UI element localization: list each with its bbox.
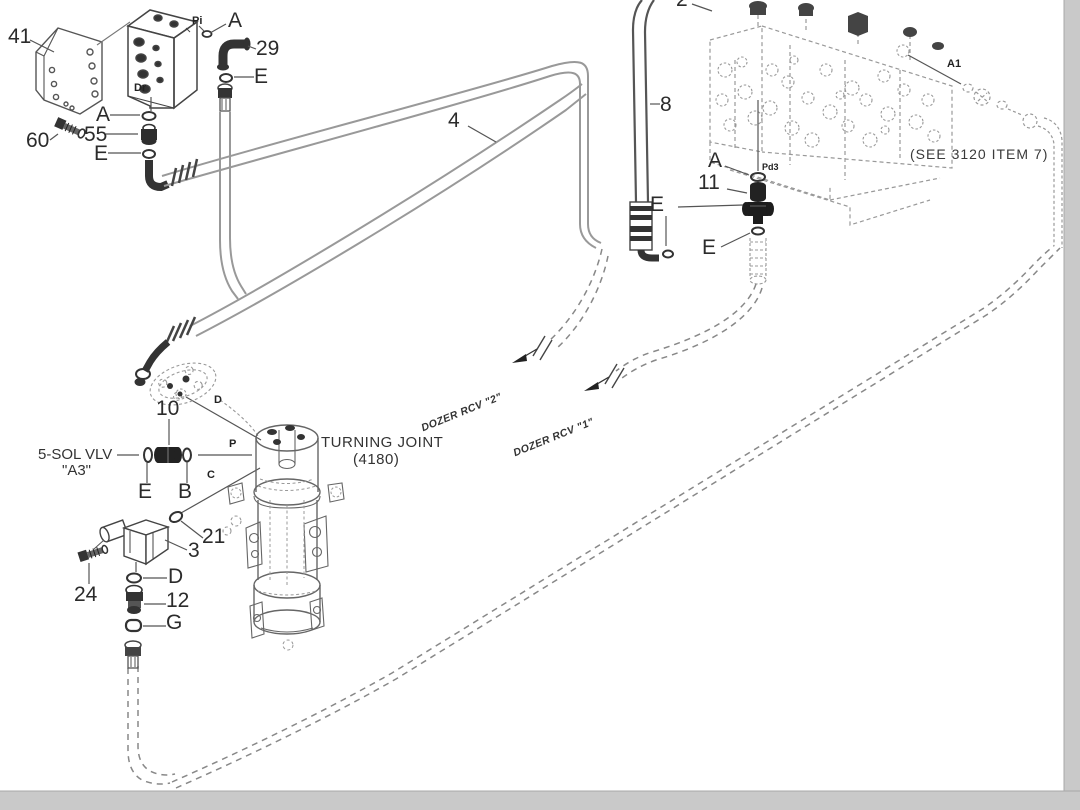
- callout-29: 29: [256, 38, 279, 59]
- straight-fitting-under-29: [218, 84, 232, 111]
- callout-4-leader: [468, 126, 496, 142]
- hose-4: [190, 84, 586, 336]
- callout-24: 24: [74, 584, 97, 605]
- fitting-letter-e-tee: E: [702, 237, 716, 258]
- fitting-letter-a-55: A: [96, 104, 110, 125]
- sol-vlv-fitting-row: [117, 419, 252, 483]
- solenoid-block-3: [94, 520, 187, 564]
- port-label-c: C: [207, 470, 215, 481]
- hose-4-crimp: [166, 317, 195, 344]
- misc-leaders: [30, 40, 54, 52]
- callout-3: 3: [188, 540, 200, 561]
- dozer-route-1-break: [605, 364, 624, 388]
- dr-port-chain: [106, 97, 168, 187]
- port-label-p: P: [229, 439, 236, 450]
- control-valve-caps: [749, 1, 944, 50]
- callout-21: 21: [202, 526, 225, 547]
- port-label-d: D: [214, 395, 222, 406]
- callout-4: 4: [448, 110, 460, 131]
- dozer-route-2: [549, 249, 608, 348]
- hose-4-end-elbow: [135, 342, 169, 386]
- turning-joint: [228, 425, 344, 638]
- see-reference-note: (SEE 3120 ITEM 7): [910, 147, 1048, 161]
- control-valve-ports: [716, 56, 940, 147]
- turning-joint-code: (4180): [353, 452, 399, 467]
- port-label-pi: Pi: [192, 16, 202, 27]
- fitting-letter-e-29: E: [254, 66, 268, 87]
- fitting-letter-e-sol: E: [138, 481, 152, 502]
- o-ring-21: [168, 510, 203, 538]
- dozer-route-2-break: [533, 336, 552, 360]
- hose-8: [633, 0, 654, 202]
- fitting-letter-e-hose8: E: [650, 194, 664, 215]
- port-label-dr: Dr: [134, 83, 146, 94]
- port-label-pd3: Pd3: [762, 163, 779, 172]
- callout-12: 12: [166, 590, 189, 611]
- long-dashed-hose-route: [128, 246, 1060, 788]
- fitting-letter-a-top: A: [228, 10, 242, 31]
- callout-41: 41: [8, 26, 31, 47]
- callout-11: 11: [698, 172, 720, 193]
- callout-8: 8: [660, 94, 672, 115]
- bolt-24: [77, 543, 108, 584]
- fitting-letter-d-12: D: [168, 566, 183, 587]
- sol-valve-label: 5-SOL VLV: [38, 447, 112, 462]
- callout-2: 2: [676, 0, 688, 10]
- o-ring-e29: [220, 74, 254, 82]
- sol-valve-name: "A3": [62, 463, 91, 478]
- elbow-fitting-29: [217, 38, 256, 71]
- turning-joint-ports: [267, 425, 305, 445]
- valve-under-fitting-chain: [721, 100, 774, 284]
- fitting-letter-g-12: G: [166, 612, 182, 633]
- turning-joint-label: TURNING JOINT: [321, 435, 443, 450]
- turning-joint-tab-holes: [231, 487, 341, 498]
- fitting-letter-a-tee: A: [708, 150, 722, 171]
- fitting-letter-e-55: E: [94, 143, 108, 164]
- bolt-60: [50, 117, 87, 140]
- callout-60: 60: [26, 130, 49, 151]
- parts-diagram-page: 41 60 55 29 4 8 2 11 10 21 3 24 12 A A A…: [0, 0, 1080, 810]
- port-label-a1: A1: [947, 59, 961, 70]
- d-12-g-chain: [126, 562, 167, 631]
- fitting-letter-b-sol: B: [178, 481, 192, 502]
- dozer-route-1: [616, 284, 762, 378]
- pi-port-fitting: [199, 24, 226, 37]
- callout-10: 10: [156, 398, 179, 419]
- mounting-bracket: [36, 22, 130, 114]
- callout-2-leader: [692, 4, 712, 11]
- bottom-hose-fitting: [125, 641, 141, 668]
- dashed-flange-dots: [167, 376, 190, 397]
